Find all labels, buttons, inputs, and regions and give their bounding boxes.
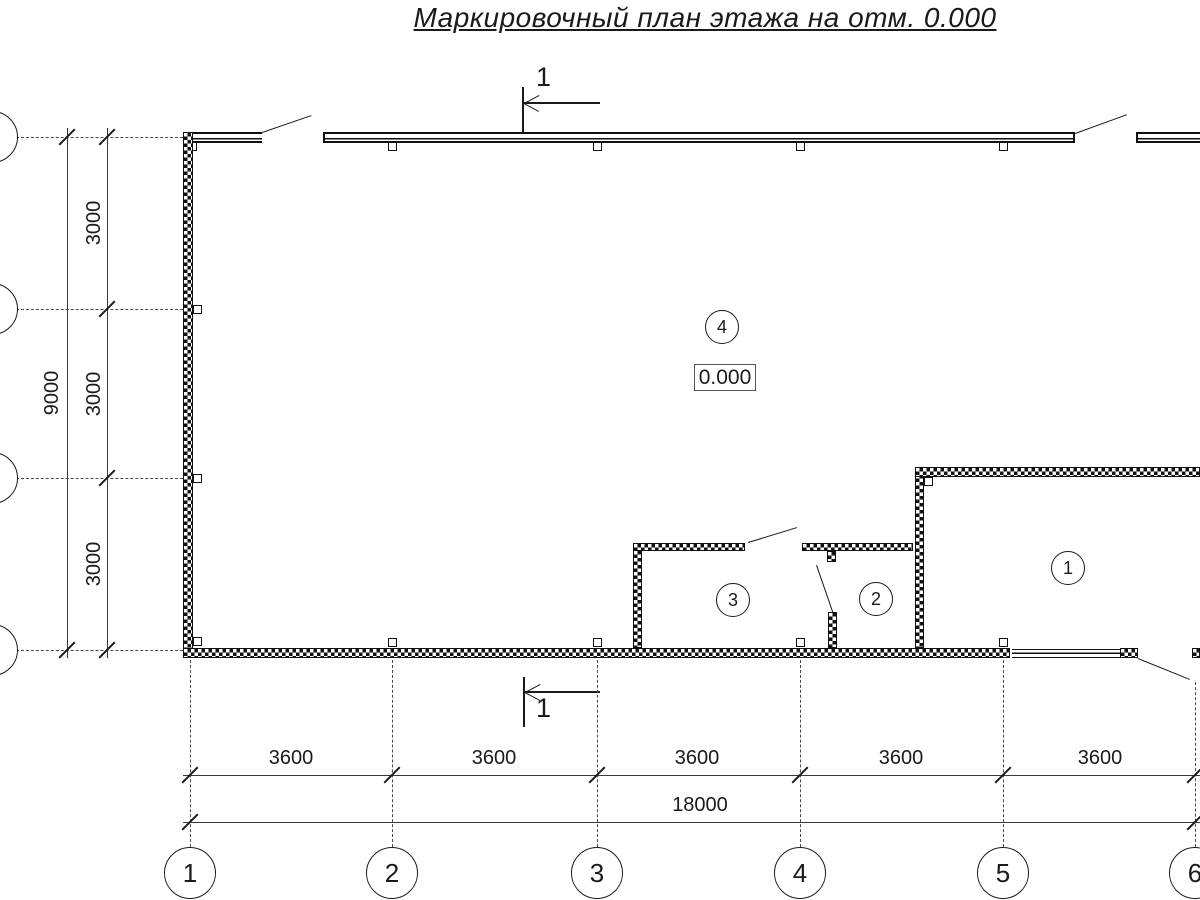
door-leaf-line	[262, 115, 311, 133]
dimension-value: 3600	[449, 747, 539, 769]
axis-circle-4: 4	[774, 847, 826, 899]
room-number-label: 3	[728, 590, 738, 611]
floor-plan-canvas: Маркировочный план этажа на отм. 0.000 1…	[0, 0, 1200, 900]
room-number-2: 2	[859, 582, 893, 616]
axis-circle-6: 6	[1169, 847, 1200, 899]
door-leaf-line	[816, 565, 833, 613]
dimension-line-vertical-segments	[107, 128, 108, 658]
section-cut-line-top	[524, 102, 600, 104]
column-square	[593, 638, 602, 647]
wall-left	[183, 132, 193, 658]
wall-pier	[1120, 648, 1138, 658]
axis-circle-left	[0, 111, 18, 163]
axis-line	[800, 660, 801, 847]
axis-circle-2: 2	[366, 847, 418, 899]
wall-room2-top	[802, 543, 913, 551]
room-number-3: 3	[716, 583, 750, 617]
column-square	[924, 477, 933, 486]
column-square	[193, 637, 202, 646]
wall-stub	[828, 612, 837, 648]
dimension-value: 3600	[246, 747, 336, 769]
axis-line	[16, 650, 183, 651]
axis-line	[16, 137, 183, 138]
window-band	[1012, 649, 1120, 658]
room-number-label: 1	[1063, 558, 1073, 579]
dimension-line-vertical-total	[67, 128, 68, 658]
column-square	[796, 638, 805, 647]
wall-stub	[827, 551, 836, 562]
door-leaf-line	[1075, 114, 1127, 134]
axis-number-label: 4	[793, 858, 807, 889]
axis-number-label: 3	[590, 858, 604, 889]
dimension-value: 3600	[856, 747, 946, 769]
dimension-total: 18000	[655, 794, 745, 816]
axis-number-label: 1	[183, 858, 197, 889]
dimension-line-horizontal-segments	[183, 775, 1200, 776]
elevation-mark: 0.000	[694, 364, 756, 391]
section-cut-bar-bottom	[523, 677, 525, 727]
column-square	[593, 142, 602, 151]
dimension-value: 3000	[84, 519, 104, 609]
glazing-band-segment	[323, 132, 1075, 143]
door-leaf-line	[748, 527, 797, 543]
dimension-line-horizontal-total	[183, 822, 1200, 823]
room-number-label: 4	[717, 317, 727, 338]
column-square	[388, 638, 397, 647]
column-square	[796, 142, 805, 151]
room-number-1: 1	[1051, 551, 1085, 585]
section-cut-bar-top	[522, 87, 524, 132]
drawing-title: Маркировочный план этажа на отм. 0.000	[405, 2, 1005, 34]
room-number-4: 4	[705, 310, 739, 344]
axis-circle-1: 1	[164, 847, 216, 899]
column-square	[193, 474, 202, 483]
wall-room3-left	[633, 543, 642, 648]
axis-line	[392, 660, 393, 847]
axis-line	[1003, 660, 1004, 847]
dimension-value: 3600	[652, 747, 742, 769]
wall-edge-piece	[1192, 648, 1200, 658]
column-square	[999, 142, 1008, 151]
door-leaf-line	[1138, 658, 1190, 680]
section-arrow-icon	[524, 103, 539, 112]
axis-circle-left	[0, 624, 18, 676]
axis-circle-left	[0, 283, 18, 335]
column-square	[999, 638, 1008, 647]
dimension-value: 3000	[84, 178, 104, 268]
wall-room3-top	[633, 543, 745, 551]
wall-room1-left	[915, 467, 924, 648]
dimension-total: 9000	[42, 348, 62, 438]
wall-room1-top	[915, 467, 1200, 477]
axis-number-label: 5	[996, 858, 1010, 889]
section-label-top: 1	[536, 64, 551, 91]
wall-bottom	[183, 648, 1010, 658]
elevation-value: 0.000	[699, 366, 752, 390]
axis-number-label: 6	[1188, 858, 1200, 889]
axis-line	[16, 478, 183, 479]
column-square	[193, 305, 202, 314]
column-square	[388, 142, 397, 151]
axis-circle-5: 5	[977, 847, 1029, 899]
axis-line	[597, 660, 598, 847]
section-label-bottom: 1	[536, 695, 551, 722]
dimension-value: 3000	[84, 349, 104, 439]
dimension-value: 3600	[1055, 747, 1145, 769]
axis-line	[16, 309, 183, 310]
axis-number-label: 2	[385, 858, 399, 889]
glazing-band-segment	[1136, 132, 1200, 143]
axis-circle-3: 3	[571, 847, 623, 899]
room-number-label: 2	[871, 589, 881, 610]
axis-circle-left	[0, 452, 18, 504]
